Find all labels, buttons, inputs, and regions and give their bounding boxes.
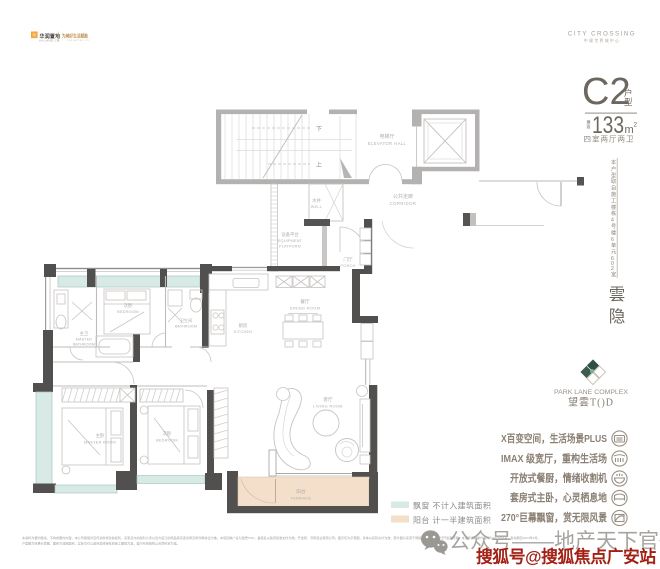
svg-text:CORRIDOR: CORRIDOR — [390, 201, 417, 206]
svg-text:2: 2 — [634, 122, 638, 129]
svg-text:BEDROOM: BEDROOM — [117, 310, 139, 314]
svg-text:LIVING ROOM: LIVING ROOM — [313, 405, 343, 409]
svg-text:设备平台: 设备平台 — [281, 231, 299, 238]
svg-text:为美好生活赋能: 为美好生活赋能 — [62, 33, 88, 40]
svg-text:WELL: WELL — [311, 205, 323, 209]
svg-text:次卧: 次卧 — [163, 430, 172, 437]
svg-text:TERRACE: TERRACE — [291, 497, 312, 501]
svg-text:飘窗 不计入建筑面积: 飘窗 不计入建筑面积 — [413, 501, 491, 511]
svg-text:四室两厅两卫: 四室两厅两卫 — [584, 134, 635, 144]
svg-text:隐: 隐 — [609, 307, 626, 326]
svg-text:阳台 计一半建筑面积: 阳台 计一半建筑面积 — [413, 515, 491, 525]
svg-text:ELEVATOR HALL: ELEVATOR HALL — [368, 141, 407, 146]
svg-text:雲: 雲 — [609, 285, 626, 304]
svg-text:公共走廊: 公共走廊 — [393, 193, 413, 200]
svg-text:IMAX 级宽厅，重构生活场: IMAX 级宽厅，重构生活场 — [501, 452, 607, 465]
svg-text:HI-LAND CO.: HI-LAND CO. — [40, 39, 61, 43]
svg-text:主卧: 主卧 — [96, 432, 105, 439]
svg-text:BATHROOM: BATHROOM — [73, 343, 95, 347]
svg-text:厨房: 厨房 — [239, 322, 248, 329]
svg-text:门厅: 门厅 — [343, 256, 353, 263]
svg-text:MASTER: MASTER — [76, 338, 92, 342]
svg-text:270°巨幕飘窗，赏无限风景: 270°巨幕飘窗，赏无限风景 — [501, 511, 607, 524]
svg-text:DINING ROOM: DINING ROOM — [290, 307, 321, 311]
svg-text:餐厅: 餐厅 — [300, 298, 310, 305]
svg-text:FOR BETTER CITY: FOR BETTER CITY — [68, 40, 91, 42]
svg-text:MASTER ROOM: MASTER ROOM — [84, 441, 116, 445]
svg-text:下: 下 — [316, 126, 322, 133]
svg-text:CITY CROSSING: CITY CROSSING — [568, 31, 636, 38]
svg-text:型: 型 — [624, 97, 633, 107]
svg-text:BATHROOM: BATHROOM — [175, 325, 197, 329]
svg-text:上: 上 — [316, 161, 322, 169]
svg-text:BEDROOM: BEDROOM — [156, 439, 178, 443]
svg-text:KITCHEN: KITCHEN — [234, 330, 253, 334]
svg-text:客厅: 客厅 — [323, 396, 333, 403]
svg-text:开放式餐厨，情绪收割机: 开放式餐厨，情绪收割机 — [510, 472, 607, 485]
svg-text:望雲T()D: 望雲T()D — [568, 396, 614, 409]
svg-text:次卧: 次卧 — [124, 302, 133, 309]
svg-text:PLATFORM: PLATFORM — [279, 245, 301, 249]
svg-text:卫生间: 卫生间 — [180, 317, 193, 324]
svg-text:水井: 水井 — [312, 197, 321, 204]
svg-text:电梯厅: 电梯厅 — [379, 133, 394, 140]
svg-text:主卫: 主卫 — [80, 330, 89, 336]
svg-text:PORCH: PORCH — [340, 264, 355, 268]
svg-text:面: 面 — [587, 124, 591, 129]
svg-text:EQUIPMENT: EQUIPMENT — [278, 239, 303, 243]
svg-text:户型图为效果示意图，面积为建筑面积，实际交付以政府最终审批的: 户型图为效果示意图，面积为建筑面积，实际交付以政府最终审批的施工图纸为准，套内布… — [22, 541, 180, 546]
svg-text:套房式主卧，心灵栖息地: 套房式主卧，心灵栖息地 — [509, 491, 607, 504]
svg-text:阳台: 阳台 — [296, 488, 306, 495]
svg-text:X百变空间，生活场景PLUS: X百变空间，生活场景PLUS — [501, 432, 607, 445]
svg-text:搜狐号@搜狐焦点广安站: 搜狐号@搜狐焦点广安站 — [476, 547, 656, 567]
svg-text:中骏世界城中心: 中骏世界城中心 — [584, 37, 620, 43]
svg-text:PARK LANE COMPLEX: PARK LANE COMPLEX — [554, 389, 628, 396]
